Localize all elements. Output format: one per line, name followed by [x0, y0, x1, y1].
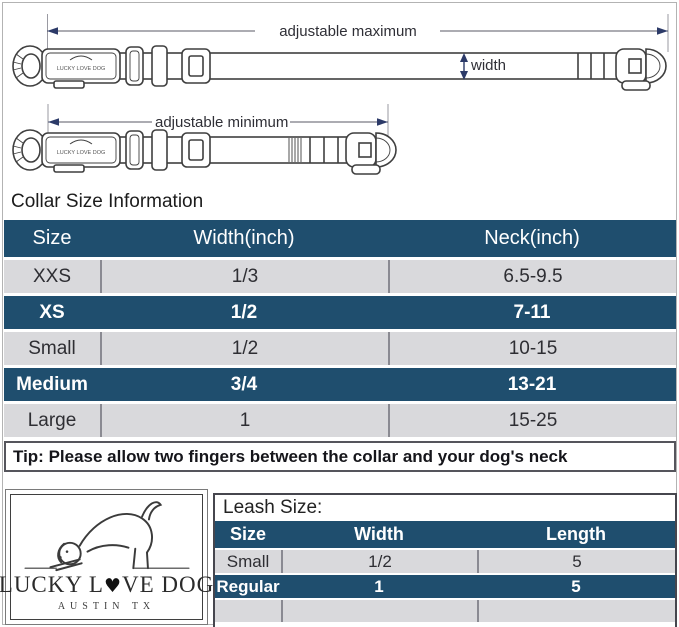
- cell-width: 1/3: [100, 260, 388, 293]
- table-row-xxs: XXS 1/3 6.5-9.5: [4, 260, 676, 293]
- cell-width: 1/2: [100, 296, 388, 329]
- cell-size: XXS: [4, 260, 100, 293]
- cell-neck: 13-21: [388, 368, 676, 401]
- cell-empty: [215, 600, 281, 622]
- cell-size: Medium: [4, 368, 100, 401]
- cell-neck: 10-15: [388, 332, 676, 365]
- header-size: Size: [4, 220, 100, 257]
- leash-size-section: Leash Size: Size Width Length Small 1/2 …: [213, 493, 677, 627]
- cell-size: Large: [4, 404, 100, 437]
- adjustable-maximum-label: adjustable maximum: [258, 23, 438, 40]
- collar-size-title: Collar Size Information: [11, 191, 203, 213]
- brand-logo-inner: LUCKY L♥VE DOG AUSTIN TX: [10, 494, 203, 620]
- collar-table-header: Size Width(inch) Neck(inch): [4, 220, 676, 257]
- cell-length: 5: [477, 550, 675, 573]
- brand-location: AUSTIN TX: [58, 601, 155, 612]
- cell-width: 3/4: [100, 368, 388, 401]
- cell-width: 1: [100, 404, 388, 437]
- cell-empty: [477, 600, 675, 622]
- brand-logo: LUCKY L♥VE DOG AUSTIN TX: [5, 489, 208, 625]
- table-row-small: Small 1/2 10-15: [4, 332, 676, 365]
- header-neck: Neck(inch): [388, 220, 676, 257]
- leash-size-title: Leash Size:: [215, 495, 675, 521]
- cell-neck: 6.5-9.5: [388, 260, 676, 293]
- collar-size-table: Size Width(inch) Neck(inch) XXS 1/3 6.5-…: [4, 220, 676, 437]
- fit-tip: Tip: Please allow two fingers between th…: [4, 441, 676, 472]
- dog-illustration: [17, 497, 197, 575]
- leash-row-small: Small 1/2 5: [215, 550, 675, 573]
- cell-length: 5: [477, 575, 675, 598]
- cell-neck: 15-25: [388, 404, 676, 437]
- cell-width: 1/2: [100, 332, 388, 365]
- cell-width: 1/2: [281, 550, 477, 573]
- collar-min-illustration: LUCKY LOVE DOG: [13, 130, 396, 174]
- table-row-xs: XS 1/2 7-11: [4, 296, 676, 329]
- cell-size: Small: [4, 332, 100, 365]
- heart-icon: ♥: [104, 575, 122, 597]
- leash-row-empty: [215, 600, 675, 622]
- brand-name-part2: VE DOG: [122, 572, 214, 597]
- leash-header-size: Size: [215, 521, 281, 548]
- buckle-engraving: LUCKY LOVE DOG: [57, 150, 106, 156]
- buckle-engraving: LUCKY LOVE DOG: [57, 66, 106, 72]
- cell-width: 1: [281, 575, 477, 598]
- table-row-medium: Medium 3/4 13-21: [4, 368, 676, 401]
- brand-name: LUCKY L♥VE DOG: [0, 573, 214, 596]
- width-label: width: [471, 57, 506, 74]
- leash-header-width: Width: [281, 521, 477, 548]
- cell-size: Regular: [215, 575, 281, 598]
- cell-size: XS: [4, 296, 100, 329]
- adjustable-minimum-label: adjustable minimum: [155, 114, 288, 131]
- table-row-large: Large 1 15-25: [4, 404, 676, 437]
- cell-empty: [281, 600, 477, 622]
- header-width: Width(inch): [100, 220, 388, 257]
- leash-header-length: Length: [477, 521, 675, 548]
- leash-table-header: Size Width Length: [215, 521, 675, 548]
- cell-size: Small: [215, 550, 281, 573]
- cell-neck: 7-11: [388, 296, 676, 329]
- brand-name-part1: LUCKY L: [0, 572, 104, 597]
- leash-row-regular: Regular 1 5: [215, 575, 675, 598]
- collar-max-illustration: LUCKY LOVE DOG: [13, 46, 666, 90]
